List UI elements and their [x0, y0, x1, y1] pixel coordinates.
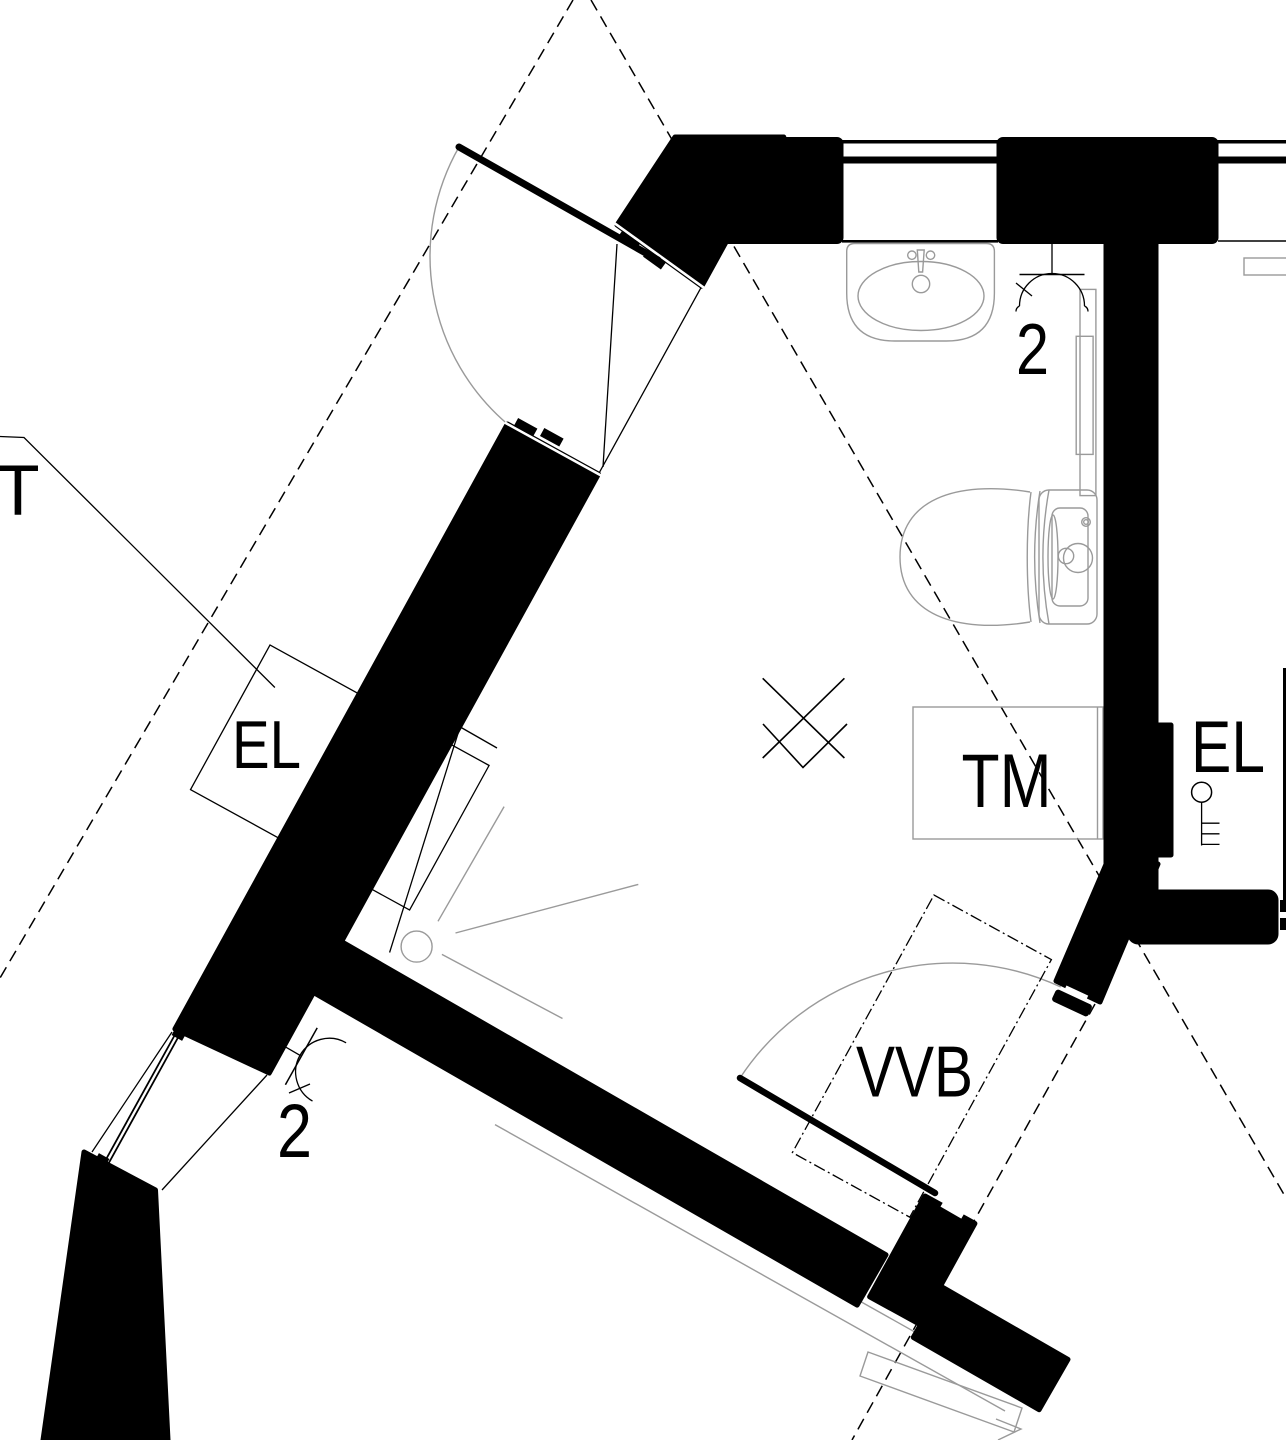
svg-text:2: 2: [1016, 310, 1049, 390]
svg-text:LT: LT: [0, 452, 40, 531]
svg-text:VVB: VVB: [856, 1033, 973, 1113]
svg-text:EL: EL: [232, 707, 301, 783]
svg-text:2: 2: [277, 1089, 312, 1174]
svg-text:EL: EL: [1191, 707, 1265, 788]
svg-text:TM: TM: [962, 739, 1052, 824]
